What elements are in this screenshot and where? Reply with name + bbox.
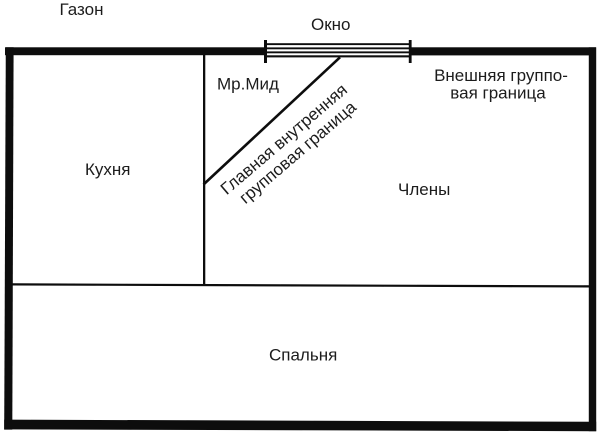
- svg-text:Окно: Окно: [311, 15, 351, 34]
- svg-text:Внешняя группо-: Внешняя группо-: [434, 66, 568, 85]
- svg-text:Газон: Газон: [60, 0, 104, 19]
- svg-text:Члены: Члены: [398, 180, 450, 199]
- svg-text:Мр.Мид: Мр.Мид: [217, 75, 279, 94]
- svg-text:Спальня: Спальня: [269, 346, 337, 365]
- svg-text:вая граница: вая граница: [450, 84, 546, 103]
- svg-text:Кухня: Кухня: [85, 160, 131, 179]
